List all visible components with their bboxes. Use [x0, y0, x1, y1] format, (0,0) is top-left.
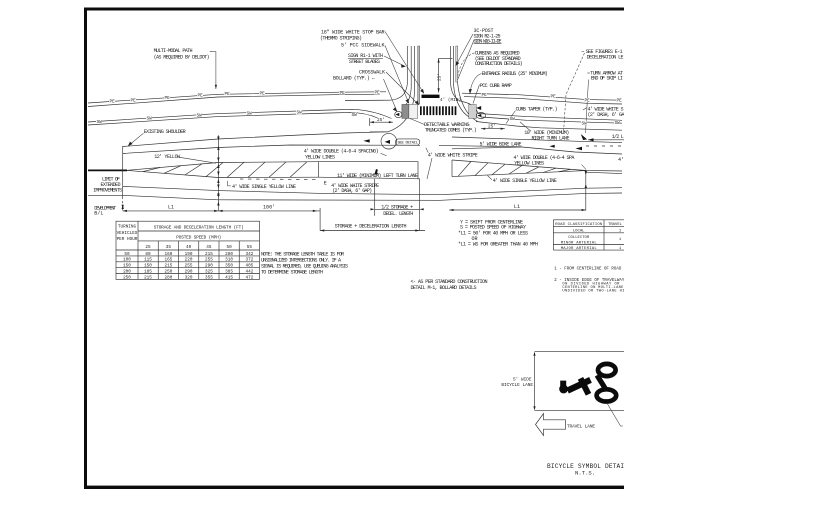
svg-text:100': 100': [263, 204, 275, 210]
svg-text:55: 55: [247, 245, 253, 250]
svg-text:PE: PE: [551, 95, 557, 100]
svg-text:(AS REQUIRED BY DELDOT): (AS REQUIRED BY DELDOT): [154, 54, 210, 60]
svg-text:PE: PE: [375, 91, 381, 96]
svg-text:YELLOW LINES: YELLOW LINES: [305, 154, 335, 160]
svg-text:SW: SW: [197, 114, 203, 119]
svg-text:165: 165: [164, 258, 172, 263]
svg-text:LOCAL: LOCAL: [573, 230, 585, 234]
svg-text:SW: SW: [247, 111, 253, 116]
svg-text:25': 25': [488, 125, 496, 130]
svg-text:4' WIDE SINGLE YELLOW LINE: 4' WIDE SINGLE YELLOW LINE: [232, 184, 296, 190]
svg-text:STORAGE AND DECELERATION LENGT: STORAGE AND DECELERATION LENGTH (FT): [154, 226, 244, 231]
svg-text:442: 442: [245, 269, 253, 274]
svg-text:DECEL. LENGTH: DECEL. LENGTH: [383, 211, 413, 217]
svg-text:40: 40: [186, 245, 192, 250]
svg-text:CROSSWALK: CROSSWALK: [359, 69, 386, 75]
svg-text:215: 215: [164, 264, 172, 269]
svg-text:BICYCLE LANE: BICYCLE LANE: [501, 383, 533, 388]
svg-text:DETAIL M-1, BOLLARD DETAILS: DETAIL M-1, BOLLARD DETAILS: [411, 285, 477, 291]
svg-text:B/L: B/L: [94, 210, 103, 216]
svg-text:STORAGE + DECELERATION LENGTH: STORAGE + DECELERATION LENGTH: [335, 224, 407, 230]
svg-text:PE: PE: [340, 91, 346, 96]
svg-text:255: 255: [185, 264, 193, 269]
svg-text:CONSTRUCTION DETAILS): CONSTRUCTION DETAILS): [475, 61, 523, 67]
svg-text:COLLECTOR: COLLECTOR: [568, 236, 590, 240]
svg-text:350: 350: [225, 264, 233, 269]
svg-text:MAJOR ARTERIAL: MAJOR ARTERIAL: [561, 247, 598, 251]
svg-text:290: 290: [185, 269, 193, 274]
svg-text:342: 342: [245, 252, 253, 257]
svg-text:255: 255: [205, 258, 213, 263]
svg-text:*L1 = WS FOR GREATER THAN 40 M: *L1 = WS FOR GREATER THAN 40 MPH: [458, 241, 538, 247]
svg-text:4' WIDE SINGLE YELLOW LINE: 4' WIDE SINGLE YELLOW LINE: [493, 178, 557, 184]
svg-text:STREET BLADES: STREET BLADES: [349, 59, 380, 65]
svg-text:11' WIDE (MINIMUM) LEFT TURN L: 11' WIDE (MINIMUM) LEFT TURN LANE: [337, 173, 418, 179]
svg-text:RIGHT TURN LANE: RIGHT TURN LANE: [532, 136, 570, 142]
svg-text:25: 25: [145, 245, 151, 250]
svg-text:290: 290: [205, 264, 213, 269]
svg-text:1/2 STORAGE +: 1/2 STORAGE +: [381, 205, 413, 211]
svg-text:310: 310: [225, 258, 233, 263]
svg-text:SW: SW: [297, 111, 303, 116]
svg-text:(2' DASH, 6' GAP): (2' DASH, 6' GAP): [332, 188, 372, 194]
svg-text:200: 200: [123, 269, 131, 274]
svg-text:PE: PE: [198, 94, 204, 99]
svg-text:PCC CURB RAMP: PCC CURB RAMP: [480, 83, 512, 89]
svg-text:TRUNCATED DOMES (TYP.): TRUNCATED DOMES (TYP.): [425, 128, 477, 134]
svg-text:BOLLARD (TYP.) ←: BOLLARD (TYP.) ←: [333, 76, 376, 82]
svg-text:215: 215: [144, 275, 152, 280]
svg-text:PE: PE: [131, 98, 137, 103]
svg-text:MINOR ARTERIAL: MINOR ARTERIAL: [561, 241, 598, 245]
svg-text:50: 50: [124, 252, 130, 257]
svg-text:DECELERATION LE: DECELERATION LE: [587, 55, 624, 61]
svg-text:IMPROVEMENTS: IMPROVEMENTS: [93, 188, 122, 194]
svg-text:(THERMO STRIPING): (THERMO STRIPING): [320, 35, 362, 41]
svg-text:TRAVEL LANE: TRAVEL LANE: [567, 425, 595, 430]
svg-text:25': 25': [437, 73, 442, 81]
svg-text:UNDIVIDED OR TWO-LANE HI: UNDIVIDED OR TWO-LANE HI: [562, 290, 624, 294]
svg-text:PE: PE: [585, 98, 591, 103]
svg-text:4' WIDE WHITE STRIPE: 4' WIDE WHITE STRIPE: [428, 152, 478, 158]
svg-text:12' YELLOW: 12' YELLOW: [154, 154, 181, 160]
svg-text:80: 80: [145, 252, 151, 257]
svg-text:MULTI-MODAL PATH: MULTI-MODAL PATH: [154, 48, 193, 54]
svg-text:PE: PE: [110, 100, 116, 105]
svg-text:250: 250: [164, 269, 172, 274]
svg-text:SW: SW: [352, 113, 358, 118]
svg-text:SW: SW: [615, 121, 621, 126]
svg-text:(2' DASH, 6' GA: (2' DASH, 6' GA: [588, 112, 626, 118]
svg-text:EXISTING SHOULDER: EXISTING SHOULDER: [144, 129, 186, 135]
svg-text:372: 372: [245, 258, 253, 263]
svg-text:325: 325: [205, 269, 213, 274]
svg-text:190: 190: [185, 252, 193, 257]
svg-text:L1: L1: [168, 204, 174, 210]
svg-text:45: 45: [206, 245, 212, 250]
svg-text:415: 415: [225, 275, 233, 280]
svg-text:150: 150: [123, 264, 131, 269]
svg-text:320: 320: [185, 275, 193, 280]
svg-text:SW: SW: [582, 121, 588, 126]
svg-text:N.T.S.: N.T.S.: [575, 470, 595, 477]
svg-text:SIGN W16-11-DE: SIGN W16-11-DE: [474, 38, 502, 44]
svg-text:355: 355: [205, 275, 213, 280]
svg-text:ENTRANCE RADIUS (25' MINIMUM): ENTRANCE RADIUS (25' MINIMUM): [482, 71, 548, 77]
svg-text:405: 405: [245, 264, 253, 269]
svg-text:385: 385: [225, 269, 233, 274]
svg-text:VEHICLES: VEHICLES: [117, 231, 138, 236]
svg-text:220: 220: [185, 258, 193, 263]
svg-text:TO DETERMINE STORAGE LENGTH: TO DETERMINE STORAGE LENGTH: [261, 270, 323, 276]
svg-text:END OF SKIP LI: END OF SKIP LI: [591, 75, 623, 81]
svg-text:150: 150: [144, 264, 152, 269]
svg-text:215: 215: [205, 252, 213, 257]
svg-text:PE: PE: [165, 96, 171, 101]
svg-text:250: 250: [123, 275, 131, 280]
svg-text:25': 25': [377, 118, 385, 123]
svg-text:185: 185: [144, 269, 152, 274]
svg-text:TRAVEL: TRAVEL: [608, 223, 623, 227]
svg-text:5' PCC SIDEWALK: 5' PCC SIDEWALK: [341, 43, 385, 49]
svg-text:1 - FROM CENTERLINE OF ROAD: 1 - FROM CENTERLINE OF ROAD: [554, 268, 622, 272]
svg-text:1/2 L: 1/2 L: [612, 134, 624, 140]
svg-text:4': 4': [618, 157, 624, 163]
svg-text:PE: PE: [482, 93, 488, 98]
svg-text:CURB TAPER (TYP.): CURB TAPER (TYP.): [516, 107, 558, 113]
svg-text:100: 100: [123, 258, 131, 263]
svg-text:PE: PE: [225, 92, 231, 97]
svg-text:ROAD CLASSIFICATION: ROAD CLASSIFICATION: [555, 223, 603, 227]
svg-text:50: 50: [226, 245, 232, 250]
svg-text:4' (MIN): 4' (MIN): [440, 98, 461, 103]
svg-text:PER HOUR: PER HOUR: [117, 237, 138, 242]
svg-text:115: 115: [144, 258, 152, 263]
svg-text:472: 472: [245, 275, 253, 280]
svg-text:POSTED SPEED (MPH): POSTED SPEED (MPH): [176, 236, 221, 241]
svg-text:SW: SW: [147, 117, 153, 122]
svg-text:SW: SW: [97, 120, 103, 125]
svg-text:TURNING: TURNING: [118, 224, 137, 229]
svg-text:5' WIDE: 5' WIDE: [513, 378, 532, 383]
svg-text:SEE DETAIL: SEE DETAIL: [398, 141, 419, 145]
svg-text:*L1 = 50' FOR 40 MPH OR LESS: *L1 = 50' FOR 40 MPH OR LESS: [458, 230, 528, 236]
svg-text:L1: L1: [514, 204, 520, 210]
svg-text:E: E: [324, 180, 327, 186]
svg-text:5' WIDE BIKE LANE: 5' WIDE BIKE LANE: [480, 142, 522, 148]
svg-text:YELLOW LINES: YELLOW LINES: [514, 160, 544, 166]
svg-text:280: 280: [225, 252, 233, 257]
svg-text:PE: PE: [617, 99, 623, 104]
svg-text:PE: PE: [260, 91, 266, 96]
svg-text:SW: SW: [510, 117, 516, 122]
svg-text:35: 35: [166, 245, 172, 250]
svg-text:160: 160: [164, 252, 172, 257]
svg-text:280: 280: [164, 275, 172, 280]
